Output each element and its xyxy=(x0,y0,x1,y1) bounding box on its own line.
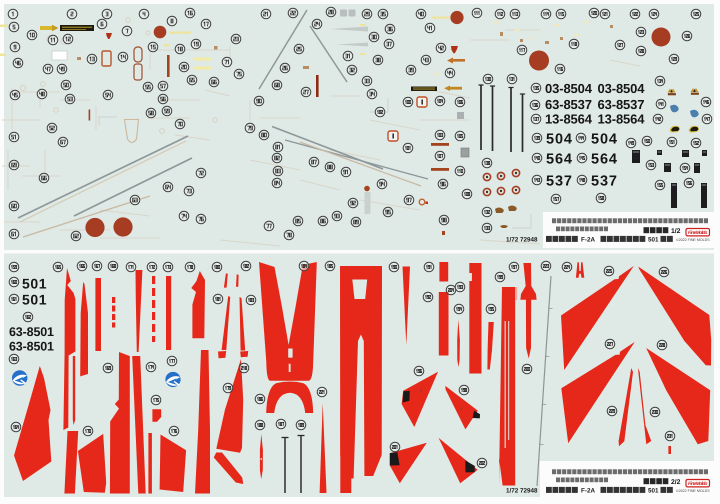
svg-text:2/2: 2/2 xyxy=(671,479,681,486)
svg-text:FineMolds: FineMolds xyxy=(688,481,708,487)
svg-text:501: 501 xyxy=(648,237,659,244)
svg-text:501: 501 xyxy=(648,488,659,495)
svg-text:1/72 72948: 1/72 72948 xyxy=(506,237,538,244)
svg-text:13-8564: 13-8564 xyxy=(598,112,646,127)
svg-text:63-8501: 63-8501 xyxy=(9,340,54,354)
svg-text:504: 504 xyxy=(546,132,572,148)
svg-text:F-2A: F-2A xyxy=(581,237,595,244)
svg-text:501: 501 xyxy=(22,292,47,308)
svg-text:13-8564: 13-8564 xyxy=(545,112,593,127)
svg-text:03-8504: 03-8504 xyxy=(598,81,646,96)
svg-text:63-8537: 63-8537 xyxy=(545,97,592,112)
svg-text:501: 501 xyxy=(22,276,47,292)
svg-text:504: 504 xyxy=(591,132,617,148)
svg-text:FineMolds: FineMolds xyxy=(688,230,708,236)
svg-text:564: 564 xyxy=(591,152,617,168)
svg-text:F-2A: F-2A xyxy=(581,488,595,495)
svg-text:537: 537 xyxy=(591,174,617,190)
svg-text:03-8504: 03-8504 xyxy=(545,81,593,96)
svg-text:©2022 FINE MOLDS: ©2022 FINE MOLDS xyxy=(676,238,710,242)
svg-text:564: 564 xyxy=(546,152,572,168)
svg-text:537: 537 xyxy=(546,174,572,190)
svg-text:©2022 FINE MOLDS: ©2022 FINE MOLDS xyxy=(676,489,710,493)
svg-text:1/2: 1/2 xyxy=(671,228,681,235)
svg-text:63-8501: 63-8501 xyxy=(9,325,54,339)
svg-text:1/72 72948: 1/72 72948 xyxy=(506,488,538,495)
svg-text:63-8537: 63-8537 xyxy=(598,97,645,112)
